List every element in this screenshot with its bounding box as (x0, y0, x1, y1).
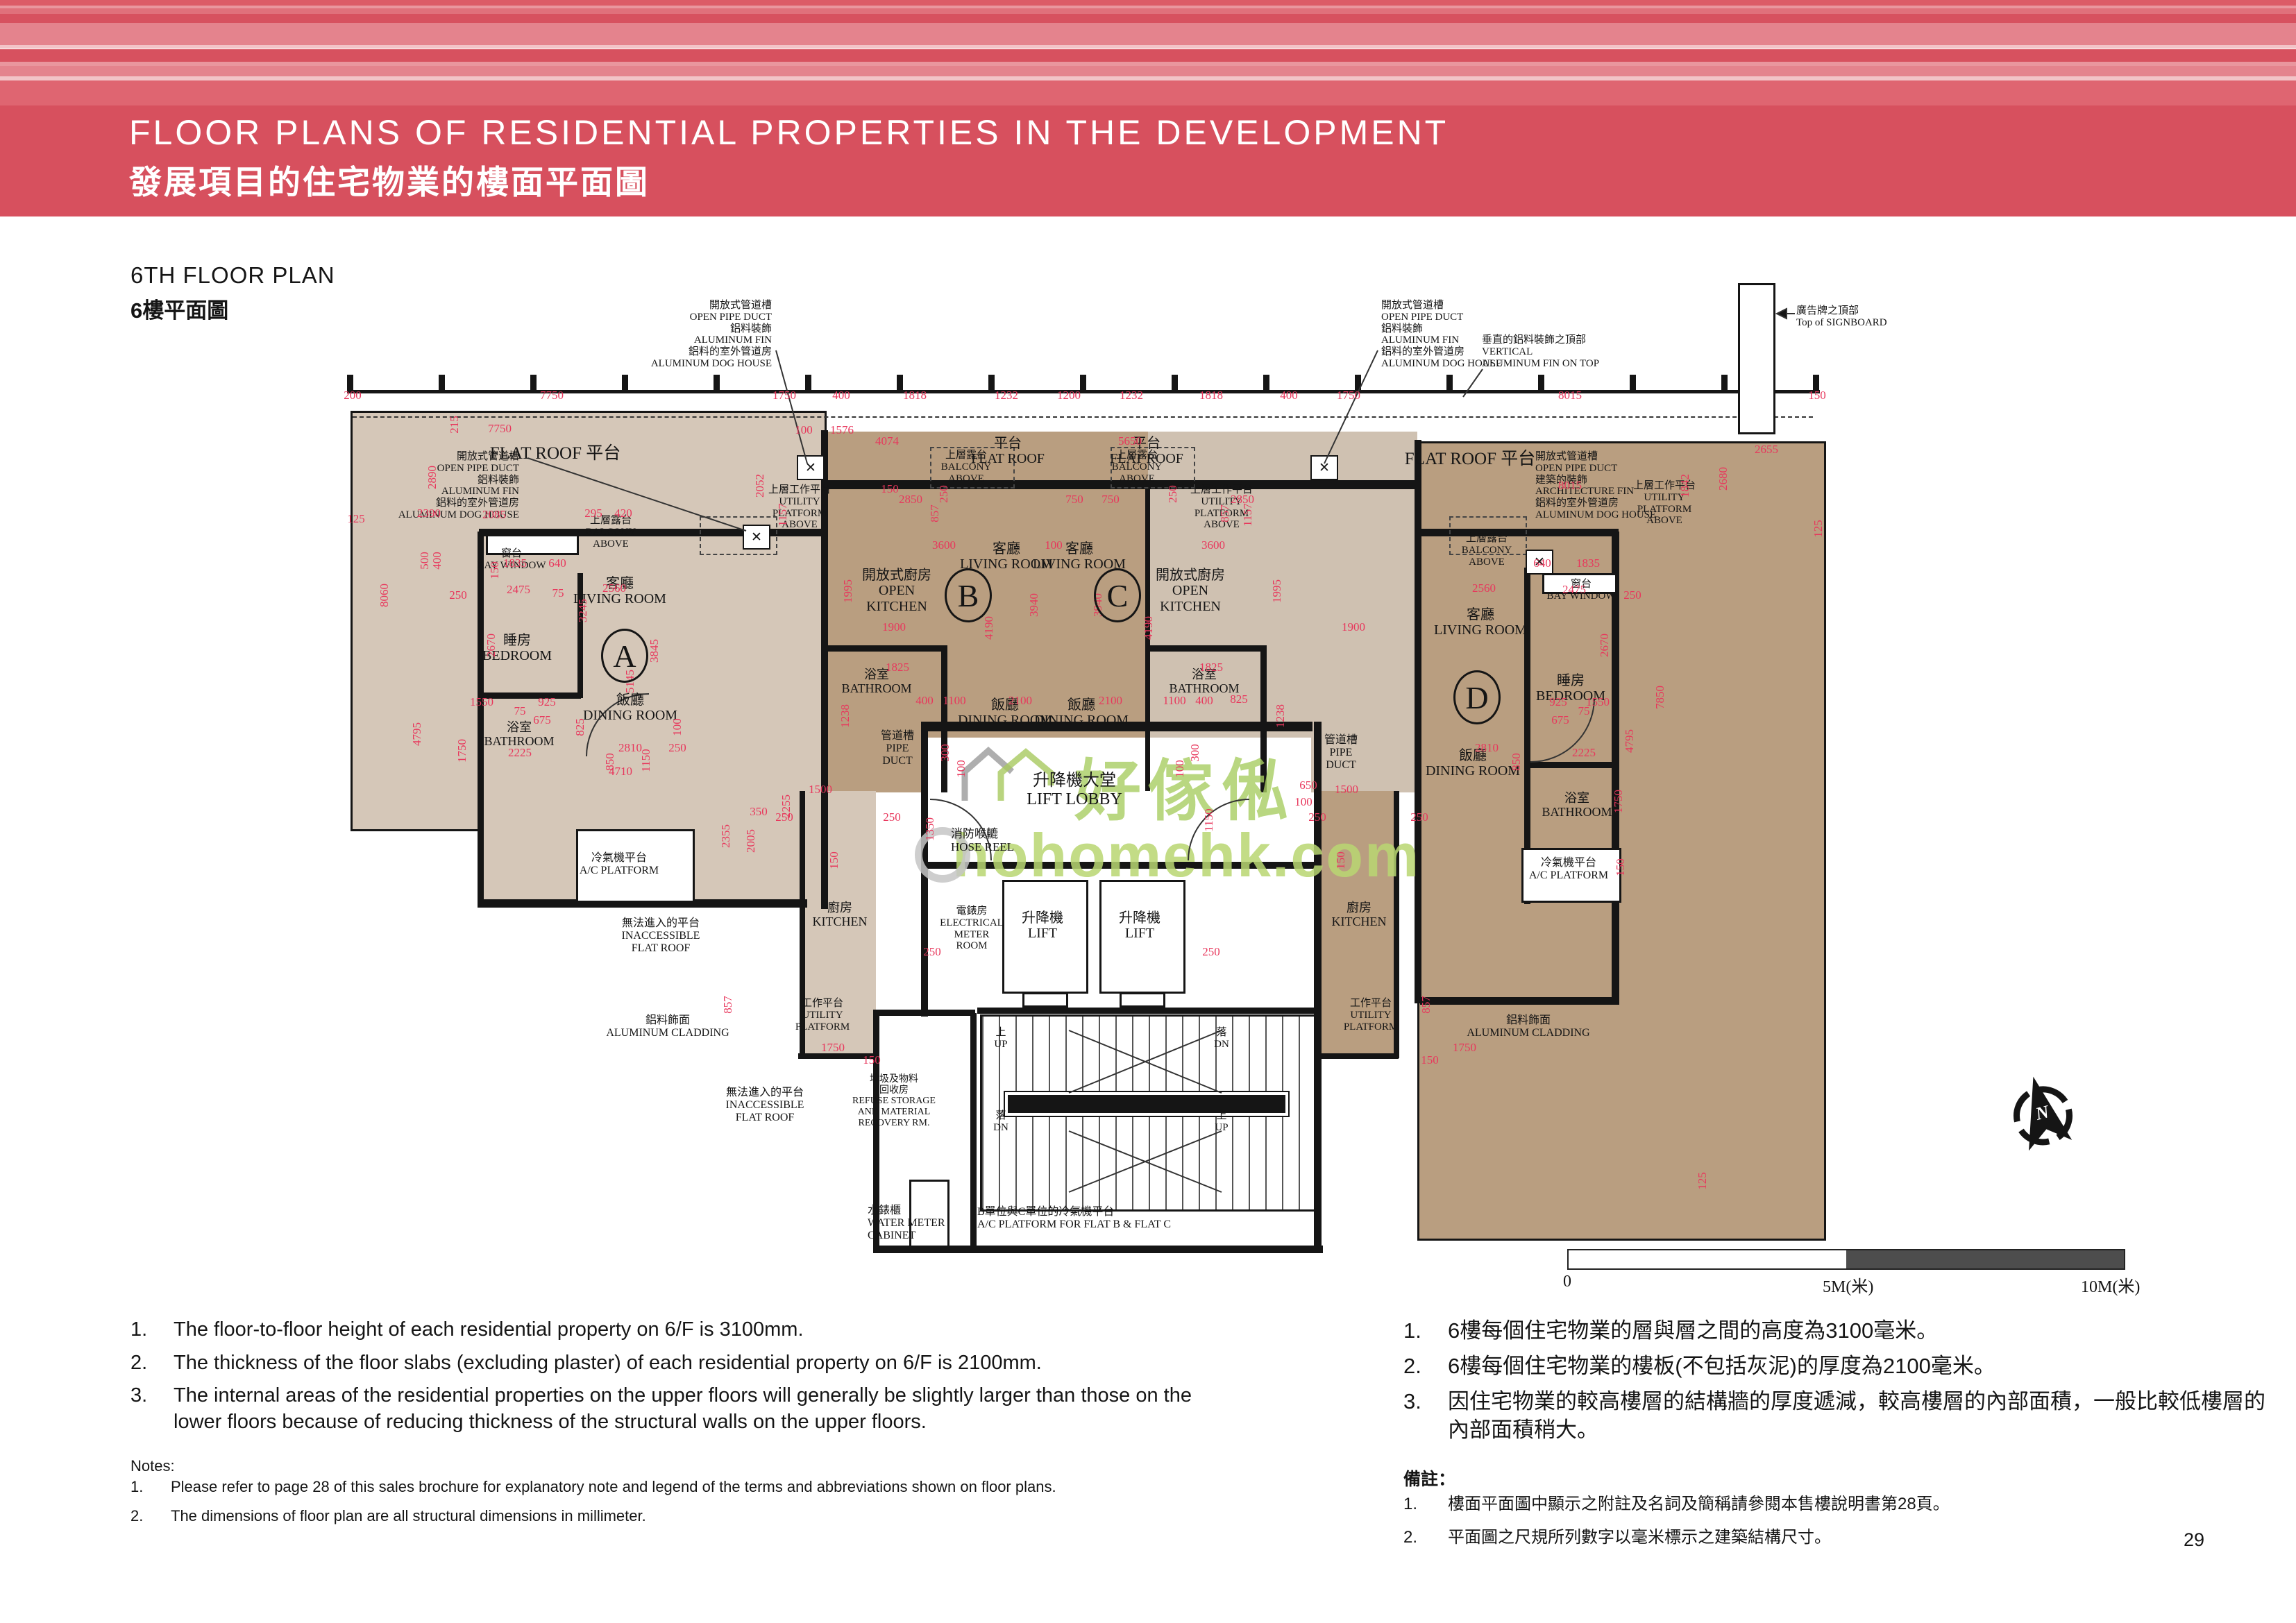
dimension-label: 1750 (1337, 389, 1360, 402)
brochure-page: FLOOR PLANS OF RESIDENTIAL PROPERTIES IN… (0, 0, 2296, 1623)
dimension-label: 400 (915, 694, 934, 708)
dimension-label: 250 (883, 810, 901, 824)
plan-label: 開放式管道槽 OPEN PIPE DUCT 建築的裝飾 ARCHITECTURE… (1535, 451, 1656, 521)
dimension-label: 400 (832, 389, 850, 402)
plan-label: 上層露台 BALCONY ABOVE (941, 450, 992, 484)
dimension-label: 1825 (886, 661, 909, 674)
dimension-label: 825 (1230, 692, 1248, 706)
dimension-label: 2005 (744, 829, 758, 853)
dimension-label: 825 (573, 718, 587, 736)
dimension-label: 8060 (378, 584, 391, 607)
plan-label: 垃圾及物料 回收房 REFUSE STORAGE AND MATERIAL RE… (852, 1074, 936, 1128)
dimension-label: 215 (448, 416, 462, 434)
plan-label: 垂直的鋁料裝飾之頂部 VERTICAL ALUMINUM FIN ON TOP (1482, 334, 1599, 369)
dimension-label: 2890 (425, 466, 439, 489)
dimension-label: 750 (1065, 493, 1083, 507)
dimension-label: 295 (584, 507, 602, 520)
plan-label: 升降機 LIFT (1022, 910, 1063, 942)
dimension-label: 100 (954, 760, 968, 778)
dimension-label: 7850 (1653, 686, 1667, 709)
plan-label: 開放式廚房 OPEN KITCHEN (1156, 568, 1225, 614)
dimension-label: 1200 (1057, 389, 1081, 402)
plan-label: 升降機 LIFT (1119, 910, 1160, 942)
plan-label: 上層露台 BALCONY ABOVE (1462, 533, 1512, 568)
dimension-label: 1750 (821, 1041, 845, 1055)
dimension-label: 1835 (1576, 556, 1600, 570)
dimension-label: 4795 (1623, 729, 1637, 753)
dimension-label: 250 (937, 485, 951, 503)
plan-label: 電錶房 ELECTRICAL METER ROOM (940, 906, 1004, 952)
dimension-label: 2225 (508, 746, 532, 760)
dimension-label: 2810 (618, 741, 642, 755)
plan-label: 落 DN (1214, 1027, 1229, 1051)
dimension-label: 2850 (899, 493, 922, 507)
plan-label: 工作平台 UTILITY PLATFORM (795, 998, 850, 1033)
dimension-label: 150 (1334, 851, 1348, 869)
dimension-label: 100 (795, 423, 813, 437)
dimension-label: 2100 (1008, 694, 1032, 708)
dimension-label: 75 (1578, 704, 1590, 718)
dimension-label: 125 (347, 512, 365, 526)
dimension-label: 2355 (719, 824, 733, 848)
dimension-label: 500 (418, 552, 432, 570)
dimension-label: 100 (670, 718, 684, 736)
plan-label: 上層露台 BALCONY ABOVE (1112, 450, 1163, 484)
dimension-label: 1900 (882, 620, 906, 634)
dimension-label: 3600 (932, 538, 956, 552)
dimension-label: 1150 (639, 749, 653, 772)
dimension-label: 2100 (1099, 694, 1122, 708)
dimension-label: 1150 (1202, 808, 1216, 831)
plan-label: 鋁料飾面 ALUMINUM CLADDING (1467, 1014, 1589, 1039)
dimension-label: 250 (1308, 810, 1326, 824)
dimension-label: 2670 (1598, 634, 1612, 657)
dimension-label: 1550 (470, 695, 493, 709)
dimension-label: 925 (538, 695, 556, 709)
dimension-label: 2810 (1475, 741, 1499, 755)
dimension-label: 150 (863, 1053, 881, 1067)
dimension-label: 100 (1294, 795, 1312, 809)
dimension-label: 1750 (455, 739, 469, 763)
dimension-label: 4190 (982, 616, 996, 640)
plan-label: 無法進入的平台 INACCESSIBLE FLAT ROOF (726, 1087, 804, 1124)
dimension-label: 150 (1614, 858, 1628, 876)
dimension-label: 1995 (1270, 579, 1284, 603)
dimension-label: 5650 (1118, 434, 1142, 448)
plan-label: 上 UP (1215, 1110, 1228, 1134)
dimension-label: 1825 (1199, 661, 1223, 674)
door-arcs-and-leaders (0, 0, 2296, 1623)
dimension-label: 640 (1533, 556, 1551, 570)
dimension-label: 4795 (410, 722, 424, 746)
plan-label: 水錶櫃 WATER METER CABINET (868, 1205, 945, 1242)
dimension-label: 850 (1510, 753, 1523, 771)
dimension-label: 420 (614, 507, 632, 520)
dimension-label: 400 (1195, 694, 1213, 708)
dimension-label: 925 (1549, 695, 1567, 709)
dimension-label: 1835 (503, 556, 527, 570)
unit-badge: B (945, 568, 992, 622)
plan-label: 客廳 LIVING ROOM (1434, 607, 1527, 638)
dimension-label: 1238 (838, 704, 852, 728)
dimension-label: 150 (488, 561, 502, 579)
dimension-label: 1232 (995, 389, 1018, 402)
dimension-label: 2655 (1755, 443, 1778, 457)
dimension-label: 1500 (809, 783, 832, 797)
dimension-label: 2475 (1562, 583, 1586, 597)
scale-label-end: 10M(米) (2081, 1273, 2140, 1297)
scale-bar-dark-segment (1846, 1250, 2124, 1268)
plan-label: 開放式廚房 OPEN KITCHEN (862, 568, 931, 614)
plan-label: 廚房 KITCHEN (1332, 901, 1387, 928)
scale-bar: 0 5M(米) 10M(米) (1567, 1249, 2125, 1270)
dimension-label: 4190 (1142, 616, 1156, 640)
dimension-label: 2475 (507, 583, 530, 597)
dimension-label: 1100 (1163, 694, 1185, 708)
dimension-label: 1350 (923, 817, 937, 841)
scale-bar-segments (1567, 1249, 2125, 1270)
dimension-label: 200 (344, 389, 362, 402)
unit-badge: C (1094, 568, 1141, 622)
plan-label: 浴室 BATHROOM (1542, 791, 1612, 819)
plan-label: 消防喉轆 HOSE REEL (951, 827, 1014, 853)
plan-label: 廚房 KITCHEN (813, 901, 868, 928)
dimension-label: 250 (1623, 588, 1641, 602)
dimension-label: 1238 (1274, 704, 1288, 728)
plan-label: 冷氣機平台 A/C PLATFORM (580, 852, 659, 877)
dimension-label: 150 (1421, 1053, 1439, 1067)
plan-label: 管道槽 PIPE DUCT (1324, 734, 1358, 772)
dimension-label: 2390 (417, 507, 441, 520)
dimension-label: 250 (668, 741, 686, 755)
plan-label: 工作平台 UTILITY PLATFORM (1344, 998, 1398, 1033)
plan-label: 落 DN (993, 1110, 1008, 1134)
dimension-label: 1750 (1453, 1041, 1476, 1055)
plan-label: 飯廳 DINING ROOM (583, 692, 677, 724)
dimension-label: 75 (552, 586, 564, 600)
plan-label: FLAT ROOF 平台 (1405, 450, 1535, 469)
plan-label: 管道槽 PIPE DUCT (881, 730, 914, 767)
dimension-label: 75 (514, 704, 526, 718)
floor-plan-drawing: 好傢俬 hohomehk.com (0, 0, 2296, 1623)
dimension-label: 2560 (1472, 581, 1496, 595)
dimension-label: 250 (1166, 485, 1180, 503)
plan-label: 冷氣機平台 A/C PLATFORM (1529, 857, 1608, 882)
dimension-label: 150 (827, 851, 841, 869)
dimension-label: 400 (430, 552, 444, 570)
dimension-label: 2225 (1572, 746, 1596, 760)
dimension-label: 250 (1202, 945, 1220, 959)
dimension-label: 2085 (482, 508, 506, 522)
dimension-label: 1750 (773, 389, 796, 402)
dimension-label: 3600 (1201, 538, 1225, 552)
scale-label-mid: 5M(米) (1823, 1273, 1873, 1297)
dimension-label: 3940 (1027, 593, 1041, 617)
dimension-label: 4710 (609, 765, 632, 779)
plan-label: 無法進入的平台 INACCESSIBLE FLAT ROOF (622, 917, 700, 955)
dimension-label: 1818 (903, 389, 927, 402)
dimension-label: 2670 (484, 634, 498, 657)
dimension-label: 1842 (1678, 474, 1692, 498)
dimension-label: 400 (1280, 389, 1298, 402)
north-arrow: N (2008, 1074, 2077, 1155)
dimension-label: 650 (1299, 779, 1317, 792)
dimension-label: 3245 (576, 599, 590, 622)
dimension-label: 857 (1419, 996, 1433, 1014)
dimension-label: 750 (1101, 493, 1120, 507)
dimension-label: 2052 (753, 474, 767, 498)
dimension-label: 857 (1218, 504, 1232, 522)
dimension-label: 7750 (488, 422, 512, 436)
scale-bar-white-segment (1569, 1250, 1846, 1268)
dimension-label: 100 (1045, 538, 1063, 552)
scale-label-zero: 0 (1563, 1273, 1571, 1291)
plan-label: 上 UP (994, 1027, 1007, 1051)
dimension-label: 250 (923, 945, 941, 959)
dimension-label: 4074 (875, 434, 899, 448)
dimension-label: 1576 (830, 423, 854, 437)
plan-label: 飯廳 DINING ROOM (1426, 748, 1520, 779)
plan-label: B單位與C單位的冷氣機平台 A/C PLATFORM FOR FLAT B & … (977, 1206, 1171, 1231)
plan-label: 鋁料飾面 ALUMINUM CLADDING (606, 1014, 729, 1039)
plan-label: 廣告牌之頂部 Top of SIGNBOARD (1796, 305, 1887, 329)
dimension-label: 300 (938, 744, 952, 762)
dimension-label: 250 (1410, 810, 1428, 824)
dimension-label: 250 (449, 588, 467, 602)
dimension-label: 1157 (1241, 503, 1255, 526)
dimension-label: 100 (1173, 760, 1187, 778)
dimension-label: 857 (721, 996, 735, 1014)
dimension-label: 1500 (1335, 783, 1358, 797)
dimension-label: 1232 (1120, 389, 1143, 402)
dimension-label: 300 (1188, 744, 1202, 762)
dimension-label: 150 (1808, 389, 1826, 402)
dimension-label: 1157 (776, 503, 790, 526)
dimension-label: 1818 (1199, 389, 1223, 402)
dimension-label: 7750 (540, 389, 564, 402)
dimension-label: 1100 (943, 694, 965, 708)
dimension-label: 3845 (648, 639, 661, 663)
unit-badge: A (601, 629, 648, 683)
dimension-label: 8015 (1558, 389, 1582, 402)
dimension-label: 1900 (1342, 620, 1365, 634)
dimension-label: 125 (1812, 520, 1825, 538)
dimension-label: 675 (1551, 713, 1569, 727)
plan-label: 開放式管道槽 OPEN PIPE DUCT 鋁料裝飾 ALUMINUM FIN … (651, 300, 772, 370)
dimension-label: 2560 (602, 581, 626, 595)
dimension-label: 640 (548, 556, 566, 570)
dimension-label: 2255 (779, 794, 793, 818)
plan-label: 升降機大堂 LIFT LOBBY (1027, 772, 1122, 809)
dimension-label: 857 (928, 504, 942, 522)
dimension-label: 1750 (1612, 790, 1626, 813)
dimension-label: 150 (881, 482, 899, 496)
dimension-label: 1995 (841, 579, 855, 603)
dimension-label: 675 (533, 713, 551, 727)
dimension-label: 8015 (1558, 479, 1582, 493)
dimension-label: 2680 (1716, 467, 1730, 491)
unit-badge: D (1453, 670, 1501, 724)
dimension-label: 350 (750, 805, 768, 819)
dimension-label: 125 (1696, 1172, 1710, 1190)
